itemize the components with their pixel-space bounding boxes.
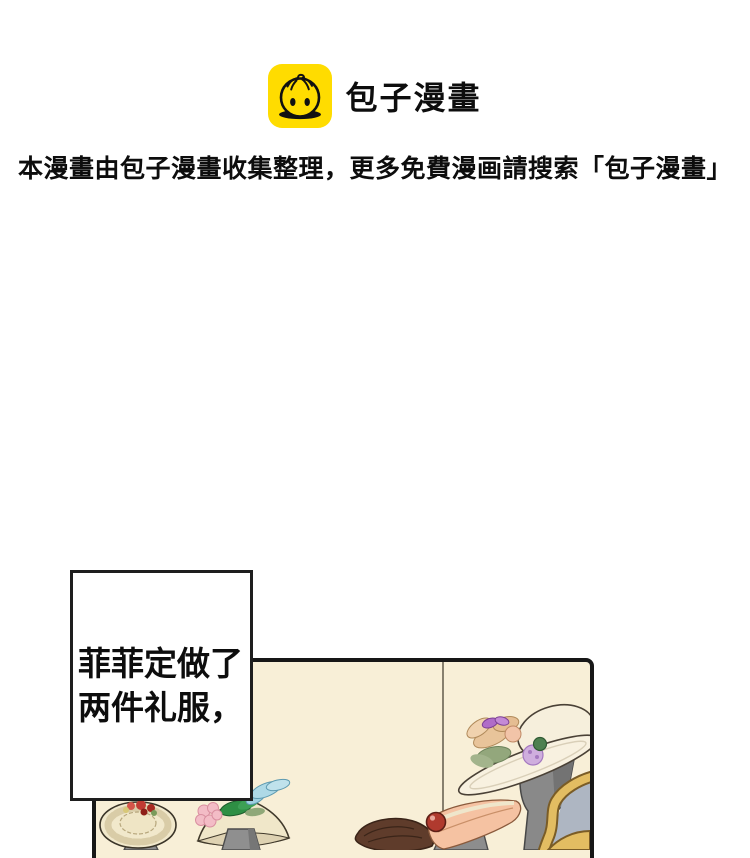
comic-reader-page: { "brand": { "app_name": "包子漫畫", "icon":…	[0, 0, 750, 850]
caption-line-2: 两件礼服，	[78, 686, 250, 730]
watermark-notice: 本漫畫由包子漫畫收集整理，更多免費漫画請搜索「包子漫畫」	[10, 149, 740, 185]
baozi-logo-icon	[268, 64, 332, 128]
brand-row: 包子漫畫	[0, 0, 750, 128]
caption-line-1: 菲菲定做了	[78, 642, 250, 686]
red-bauble	[427, 813, 446, 832]
brand-title: 包子漫畫	[345, 73, 481, 119]
watermark-header: 包子漫畫 本漫畫由包子漫畫收集整理，更多免費漫画請搜索「包子漫畫」	[0, 0, 750, 185]
ruffled-hat-on-stand	[100, 800, 176, 850]
caption-box: 菲菲定做了 两件礼服，	[70, 570, 253, 801]
